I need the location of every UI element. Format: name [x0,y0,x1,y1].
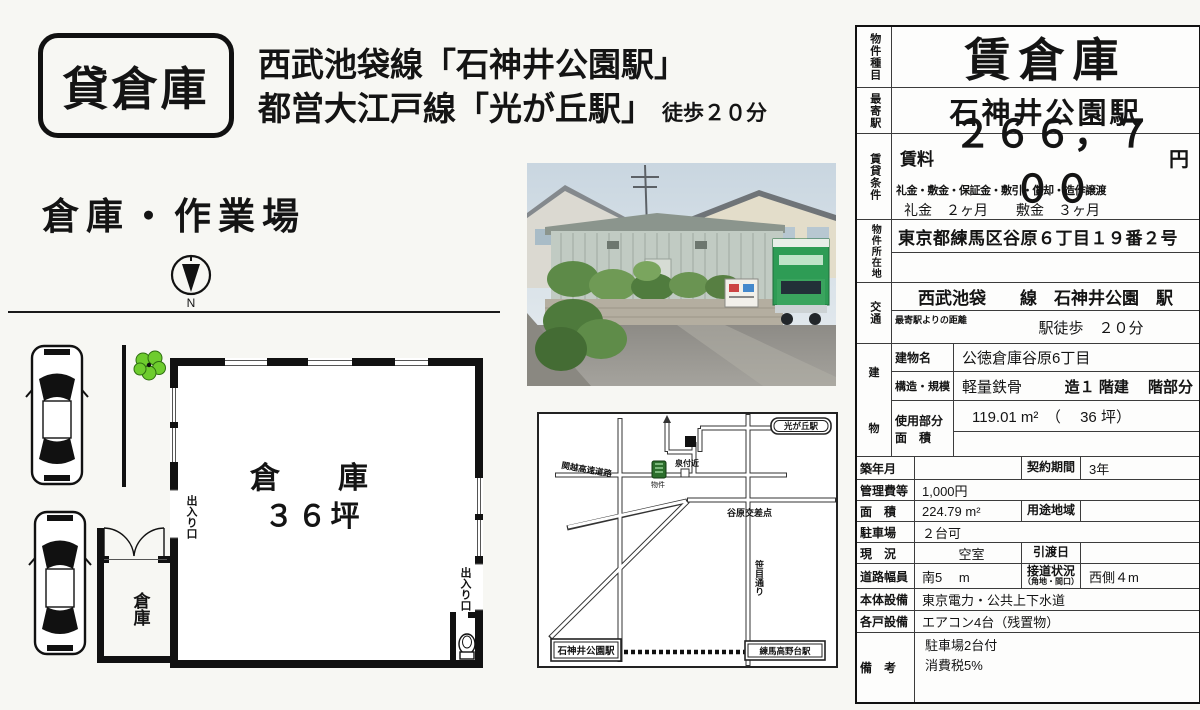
built-label: 築年月 [857,457,915,479]
built-value [915,457,1021,479]
utilities-value: 東京電力・公共上下水道 [915,589,1199,610]
car-top-view-icon [29,512,91,654]
frontage-value: 西側４m [1081,564,1199,588]
row-location: 物件所在地 東京都練馬区谷原６丁目１９番２号 [857,220,1199,283]
building-name-label: 建物名 [892,344,954,371]
section-divider-line [8,311,500,313]
compass-north-label: N [187,296,196,310]
window-opening [225,358,428,366]
row-status-handover: 現 況 空室 引渡日 [857,543,1199,564]
map-property-marker-label: 物件 [651,480,665,489]
walk-minutes-note: 徒歩２０分 [662,97,767,130]
distance-value: 駅徒歩 ２０分 [983,311,1199,338]
rent-label: 賃料 [900,145,934,170]
utilities-label: 本体設備 [857,589,915,610]
usage-subtitle: 倉庫・作業場 [42,186,306,240]
access-distance: 最寄駅よりの距離 駅徒歩 ２０分 [892,311,1199,343]
unit-equipment-label: 各戸設備 [857,611,915,632]
frontage-label: 接道状況 （角地・間口） [1021,564,1081,588]
parking-label: 駐車場 [857,522,915,542]
location-empty [892,253,1199,282]
building-area-value: 119.01 m² （ 36 坪） [954,401,1199,432]
row-notes: 備 考 駐車場2台付 消費税5% [857,633,1199,702]
status-label: 現 況 [857,543,915,563]
map-intersection-label: 谷原交差点 [727,507,772,518]
road-width-value: 南5 m [915,564,1021,588]
property-photo [527,163,836,386]
station-box-top-right: 光が丘駅 [771,418,831,434]
boundary-wall [122,345,126,487]
row-access: 交通 西武池袋 線 石神井公園 駅 最寄駅よりの距離 駅徒歩 ２０分 [857,283,1199,344]
map-street-label: 笹目通り [754,559,765,596]
zoning-value [1081,501,1199,521]
station-right-label: 練馬高野台駅 [759,646,811,656]
handover-label: 引渡日 [1021,543,1081,563]
map-landmark-building [681,469,689,477]
land-area-label: 面 積 [857,501,915,521]
location-value: 東京都練馬区谷原６丁目１９番２号 [892,220,1199,253]
access-line-value: 西武池袋 線 石神井公園 駅 [892,283,1199,311]
notes-value: 駐車場2台付 消費税5% [915,633,1199,702]
fee-value: 1,000円 [915,480,1199,500]
access-header: 交通 [857,283,892,343]
door-opening-left [170,490,178,538]
building-name-row: 建物名 公徳倉庫谷原6丁目 [892,344,1199,372]
car-top-view-icon [26,346,88,484]
station-box-left: 石神井公園駅 [551,639,621,661]
building-area-label: 使用部分 面 積 [892,401,954,456]
contract-label: 契約期間 [1021,457,1081,479]
map-landmark-label: 泉付近 [674,458,699,468]
conditions-value: 礼金 ２ヶ月 敷金 ３ヶ月 [892,198,1199,220]
headline-line2-text: 都営大江戸線「光が丘駅」 [258,82,654,130]
property-detail-table: 物件種目 賃倉庫 最寄駅 石神井公園駅 賃貸条件 賃料 ２６６，７００ 円 礼金… [855,25,1200,704]
compass-icon: N [168,252,214,310]
road-width-label: 道路幅員 [857,564,915,588]
badge-label: 貸倉庫 [63,53,210,119]
map-property-marker [652,461,666,478]
parking-value: ２台可 [915,522,1199,542]
row-utilities: 本体設備 東京電力・公共上下水道 [857,589,1199,611]
notes-label: 備 考 [857,633,915,702]
handover-value [1081,543,1199,563]
row-rental-terms: 賃貸条件 賃料 ２６６，７００ 円 礼金・敷金・保証金・敷引・償却・造作譲渡 礼… [857,134,1199,220]
property-type-header: 物件種目 [857,27,892,87]
building-structure-value: 軽量鉄骨 造１ 階建 階部分 [954,376,1199,397]
row-land-area-zoning: 面 積 224.79 m² 用途地域 [857,501,1199,522]
station-left-label: 石神井公園駅 [556,645,615,657]
zoning-label: 用途地域 [1021,501,1081,521]
headline-line1: 西武池袋線「石神井公園駅」 [258,38,687,86]
building-name-value: 公徳倉庫谷原6丁目 [954,347,1199,368]
main-room-name: 倉 庫 [249,461,382,495]
building-structure-row: 構造・規模 軽量鉄骨 造１ 階建 階部分 [892,372,1199,401]
signboard [725,279,758,307]
flyer-page: 貸倉庫 西武池袋線「石神井公園駅」 都営大江戸線「光が丘駅」 徒歩２０分 倉庫・… [0,0,1200,710]
location-header: 物件所在地 [857,220,892,282]
truck [773,239,829,325]
map-flag-marker [685,436,696,447]
unit-equipment-value: エアコン4台（残置物） [915,611,1199,632]
annex-room-name: 倉庫 [131,591,152,627]
entrance-label-left: 出入り口 [185,494,198,540]
rental-terms-header: 賃貸条件 [857,134,892,219]
row-road-frontage: 道路幅員 南5 m 接道状況 （角地・間口） 西側４m [857,564,1199,589]
row-parking: 駐車場 ２台可 [857,522,1199,543]
land-area-value: 224.79 m² [915,501,1021,521]
floor-plan: 倉 庫 ３６坪 出入り口 出入り口 倉庫 [0,330,520,710]
distance-label: 最寄駅よりの距離 [892,311,983,326]
contract-value: 3年 [1081,457,1199,479]
row-management-fee: 管理費等 1,000円 [857,480,1199,501]
row-property-type: 物件種目 賃倉庫 [857,27,1199,88]
station-top-right-label: 光が丘駅 [783,421,819,431]
row-building: 建 物 建物名 公徳倉庫谷原6丁目 構造・規模 軽量鉄骨 造１ 階建 階部分 [857,344,1199,457]
row-unit-equipment: 各戸設備 エアコン4台（残置物） [857,611,1199,633]
building-structure-label: 構造・規模 [892,372,954,400]
nearest-station-header: 最寄駅 [857,88,892,133]
fee-label: 管理費等 [857,480,915,500]
property-type-value: 賃倉庫 [892,27,1199,87]
building-header: 建 物 [857,344,892,456]
row-built-contract: 築年月 契約期間 3年 [857,457,1199,480]
tree-icon [134,351,166,380]
main-room-size: ３６坪 [264,500,363,533]
building-area-row: 使用部分 面 積 119.01 m² （ 36 坪） [892,401,1199,456]
building-area-empty [954,432,1199,456]
rental-warehouse-badge: 貸倉庫 [38,33,234,138]
station-box-right: 練馬高野台駅 [745,641,825,660]
location-map: 物件 泉付近 関越高速道路 谷原交差点 笹目通り 石神井公園駅 練馬高野台駅 光… [537,412,838,668]
conditions-header: 礼金・敷金・保証金・敷引・償却・造作譲渡 [892,181,1199,198]
toilet-icon [459,634,475,659]
rent-line: 賃料 ２６６，７００ 円 [892,134,1199,181]
headline-line2: 都営大江戸線「光が丘駅」 徒歩２０分 [258,82,767,130]
rent-unit: 円 [1169,143,1189,172]
status-value: 空室 [915,543,1021,563]
entrance-label-right: 出入り口 [459,566,472,612]
door-opening-right [475,564,483,610]
